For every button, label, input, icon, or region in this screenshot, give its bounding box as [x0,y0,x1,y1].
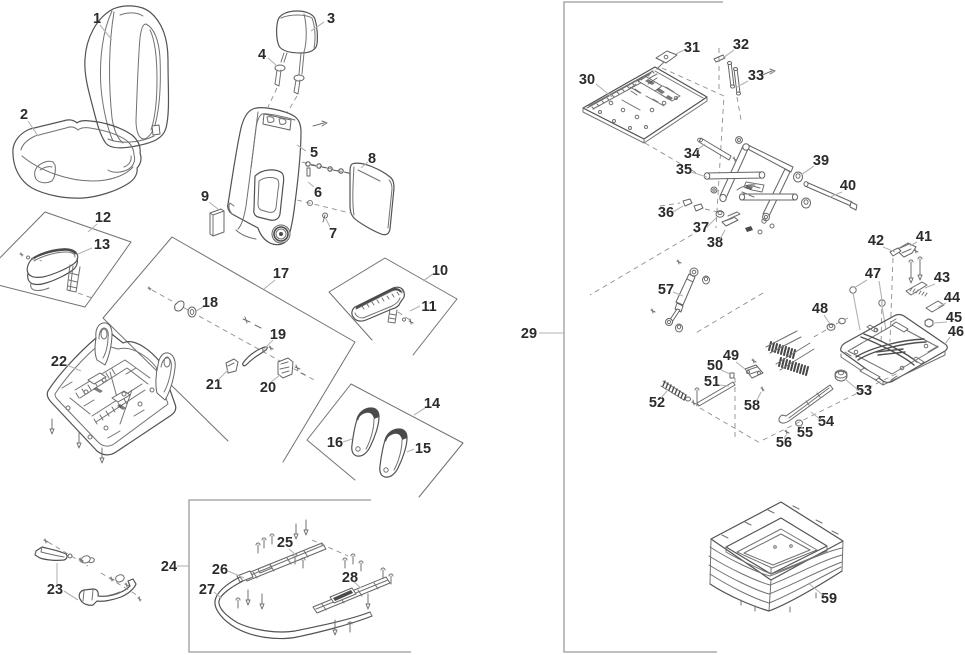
svg-text:50: 50 [707,358,723,374]
svg-text:24: 24 [161,559,177,575]
svg-text:39: 39 [813,153,829,169]
svg-text:10: 10 [432,263,448,279]
svg-text:4: 4 [258,47,266,63]
svg-text:23: 23 [47,582,63,598]
svg-text:31: 31 [684,40,700,56]
svg-text:20: 20 [260,380,276,396]
svg-text:26: 26 [212,562,228,578]
svg-text:25: 25 [277,535,293,551]
svg-text:32: 32 [733,37,749,53]
svg-text:55: 55 [797,425,813,441]
svg-text:3: 3 [327,11,335,27]
svg-text:35: 35 [676,162,692,178]
svg-text:15: 15 [415,441,431,457]
svg-text:41: 41 [916,229,932,245]
svg-text:16: 16 [327,435,343,451]
svg-text:58: 58 [744,398,760,414]
svg-text:56: 56 [776,435,792,451]
svg-text:9: 9 [201,189,209,205]
svg-text:33: 33 [748,68,764,84]
svg-text:12: 12 [95,210,111,226]
svg-text:6: 6 [314,185,322,201]
svg-text:53: 53 [856,383,872,399]
svg-text:7: 7 [329,226,337,242]
svg-text:17: 17 [273,266,289,282]
svg-text:52: 52 [649,395,665,411]
svg-text:48: 48 [812,301,828,317]
svg-text:11: 11 [421,299,436,315]
svg-text:29: 29 [521,326,537,342]
svg-text:59: 59 [821,591,837,607]
svg-text:2: 2 [20,107,28,123]
svg-text:1: 1 [93,11,101,27]
svg-text:51: 51 [704,374,720,390]
svg-text:47: 47 [865,266,881,282]
svg-text:30: 30 [579,72,595,88]
svg-text:37: 37 [693,220,709,236]
svg-text:18: 18 [202,295,218,311]
svg-text:5: 5 [310,145,318,161]
svg-text:57: 57 [658,282,674,298]
svg-text:54: 54 [818,414,834,430]
svg-text:34: 34 [684,146,700,162]
svg-text:21: 21 [206,377,222,393]
svg-text:27: 27 [199,582,215,598]
svg-text:40: 40 [840,178,856,194]
svg-text:44: 44 [944,290,960,306]
svg-text:36: 36 [658,205,674,221]
svg-text:13: 13 [94,237,110,253]
svg-text:42: 42 [868,233,884,249]
svg-text:14: 14 [424,396,440,412]
svg-text:8: 8 [368,151,376,167]
svg-text:43: 43 [934,270,950,286]
svg-text:49: 49 [723,348,739,364]
svg-text:22: 22 [51,354,67,370]
svg-text:46: 46 [948,324,964,340]
